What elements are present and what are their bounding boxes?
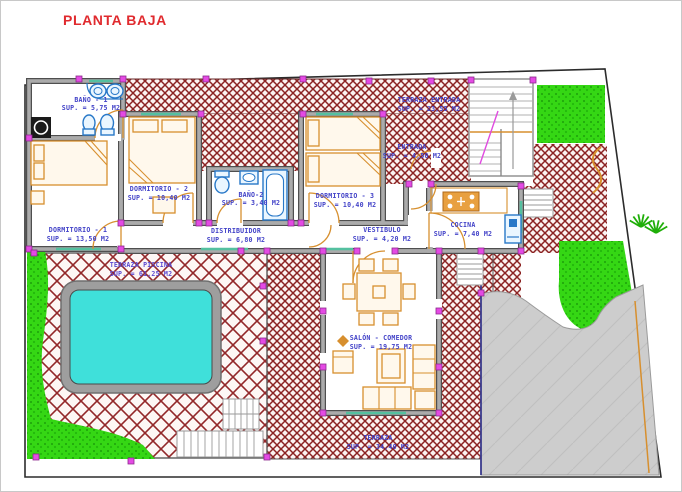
side-table-icon: [415, 391, 435, 409]
room-label: DORMITORIO - 2: [130, 185, 188, 193]
chair-icon: [359, 313, 374, 325]
staircase: [469, 79, 533, 176]
room-area: SUP. = 61,25 M2: [110, 270, 173, 278]
pool-water: [70, 290, 212, 384]
room-label: BAÑO - 1: [74, 95, 107, 104]
chair-icon: [383, 259, 398, 271]
floor-plan-page: PLANTA BAJA: [0, 0, 682, 492]
room-label: SALÓN - COMEDOR: [350, 333, 413, 342]
room-area: SUP. = 19,75 M2: [350, 343, 413, 351]
room-label: DORMITORIO - 1: [49, 226, 107, 234]
chair-icon: [359, 259, 374, 271]
room-label: BAÑO-2: [238, 190, 263, 199]
room-label: DISTRIBUIDOR: [211, 227, 261, 235]
room-label: ENTRADA: [397, 143, 426, 151]
room-label: TERRAZA ENTRADA: [398, 96, 461, 104]
green-area-top-right: [537, 85, 605, 143]
room-label: TERRAZA PISCINA: [110, 261, 173, 269]
nightstand-icon: [31, 191, 44, 204]
room-area: SUP. = 13,50 M2: [47, 235, 110, 243]
room-area: SUP. = 3,40 M2: [222, 199, 280, 207]
tv-unit-icon: [413, 345, 435, 389]
armchair-icon: [333, 351, 353, 373]
chair-icon: [403, 284, 415, 299]
room-label: TERRAZA: [363, 434, 392, 442]
room-area: SUP. = 5,75 M2: [62, 104, 120, 112]
room-label: VESTIBULO: [363, 226, 401, 234]
chair-icon: [383, 313, 398, 325]
room-area: SUP. = 23,55 M2: [398, 105, 461, 113]
toilet-icon: [215, 177, 229, 193]
chair-icon: [343, 284, 355, 299]
room-label: DORMITORIO - 3: [316, 192, 374, 200]
room-area: SUP. = 4,50 M2: [383, 152, 441, 160]
room-label: COCINA: [450, 221, 475, 229]
room-area: SUP. = 10,40 M2: [314, 201, 377, 209]
room-area: SUP. = 7,40 M2: [434, 230, 492, 238]
swimming-pool: [61, 281, 221, 393]
sink-icon: [107, 84, 123, 98]
room-area: SUP. = 6,80 M2: [207, 236, 265, 244]
page-title: PLANTA BAJA: [63, 12, 167, 28]
floor-plan-svg: PLANTA BAJA: [1, 1, 682, 492]
room-area: SUP. = 10,40 M2: [128, 194, 191, 202]
sofa-icon: [363, 387, 411, 409]
room-area: SUP. = 34,40 M2: [347, 443, 410, 451]
room-area: SUP. = 4,20 M2: [353, 235, 411, 243]
